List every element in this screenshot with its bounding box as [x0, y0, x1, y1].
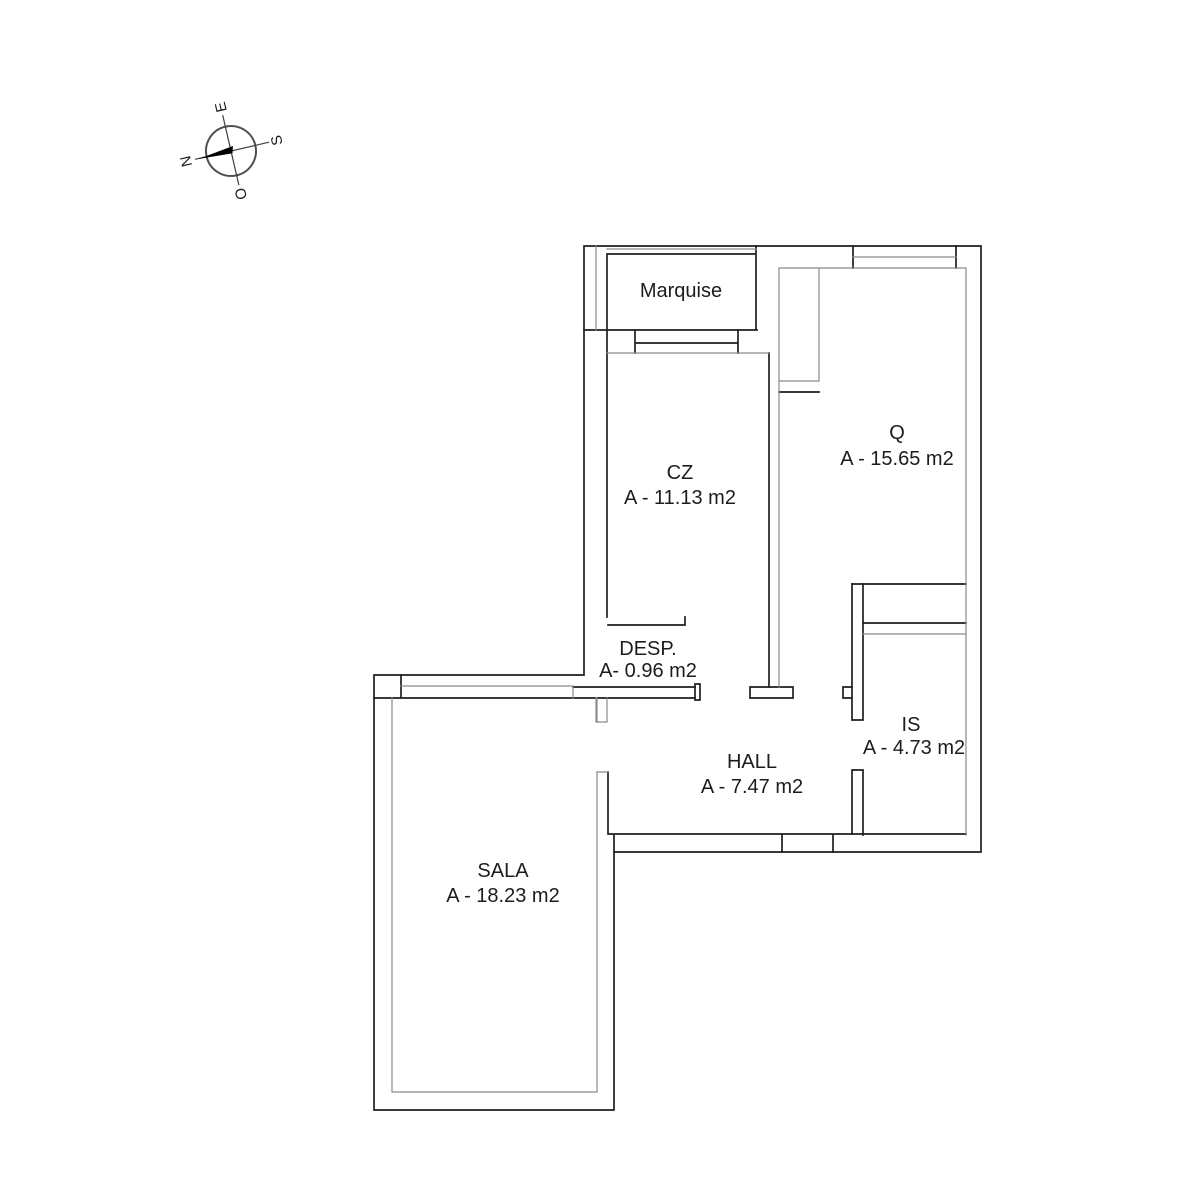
room-area-hall: A - 7.47 m2 — [701, 776, 803, 798]
floorplan-page: N E S O — [0, 0, 1200, 1200]
room-label-sala: SALA — [477, 860, 529, 882]
compass-needle-icon — [197, 146, 235, 161]
compass-rose: N E S O — [167, 90, 297, 212]
desp-walls — [608, 617, 685, 625]
room-area-is: A - 4.73 m2 — [863, 737, 965, 759]
sala-door-stub — [596, 698, 608, 772]
room-area-q: A - 15.65 m2 — [840, 448, 953, 470]
compass-label-s: S — [268, 134, 287, 148]
room-label-q: Q — [889, 422, 905, 444]
cz-window — [635, 330, 738, 353]
room-label-marquise: Marquise — [640, 280, 722, 302]
hall-door-jambs — [695, 684, 852, 700]
room-label-desp: DESP. — [619, 638, 676, 660]
room-area-sala: A - 18.23 m2 — [446, 885, 559, 907]
room-labels: Marquise CZ A - 11.13 m2 Q A - 15.65 m2 … — [446, 280, 965, 907]
room-area-desp: A- 0.96 m2 — [599, 660, 697, 682]
room-label-hall: HALL — [727, 751, 777, 773]
hall-walls — [374, 675, 966, 852]
compass-label-e: E — [212, 100, 231, 114]
floorplan-canvas: N E S O — [0, 0, 1200, 1200]
is-walls — [852, 584, 863, 835]
room-label-cz: CZ — [667, 462, 694, 484]
room-area-cz: A - 11.13 m2 — [624, 487, 736, 509]
room-label-is: IS — [902, 714, 921, 736]
compass-label-n: N — [177, 154, 196, 168]
compass-label-o: O — [232, 186, 251, 201]
